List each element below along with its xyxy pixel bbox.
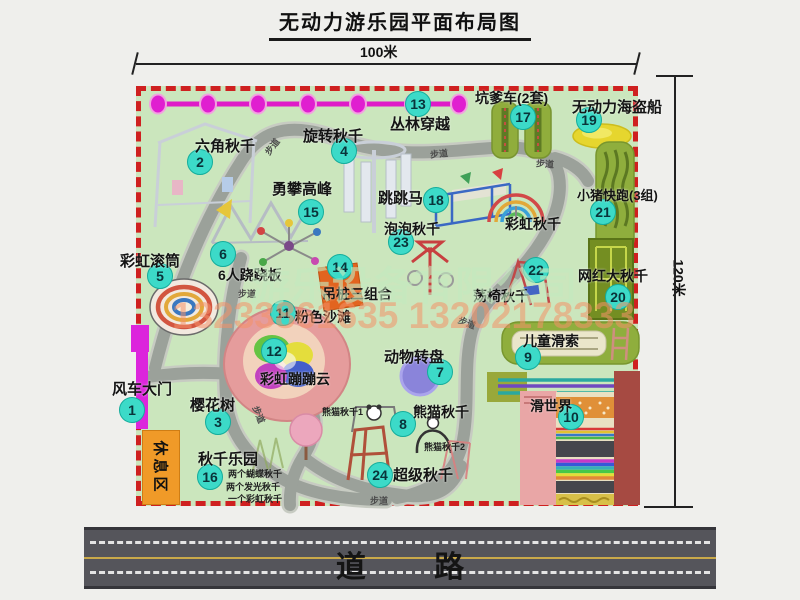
page-title-wrap: 无动力游乐园平面布局图 (0, 6, 800, 41)
dimension-tick (644, 506, 693, 508)
walkway-label: 步道 (370, 494, 388, 507)
width-dimension-line (136, 63, 637, 65)
walkway-label: 步道 (536, 156, 555, 170)
sub-label: 熊猫秋千1 (322, 405, 363, 418)
attraction-label: 彩虹秋千 (505, 214, 561, 234)
attraction-label: 无动力海盗船 (572, 96, 662, 117)
road-label: 道 路 (84, 542, 716, 586)
attraction-label: 坑爹车(2套) (475, 88, 548, 108)
attraction-label: 滑世界 (530, 396, 572, 416)
sub-label: 两个蝴蝶秋千 (228, 467, 282, 480)
attraction-label: 秋千乐园 (198, 448, 258, 469)
attraction-label: 小猪快跑(3组) (577, 185, 658, 204)
dimension-tick (656, 75, 693, 77)
attraction-label: 动物转盘 (384, 346, 444, 367)
attraction-badge-15: 15 (298, 199, 324, 225)
attraction-badge-1: 1 (119, 397, 145, 423)
attraction-label: 樱花树 (190, 394, 235, 415)
page-title: 无动力游乐园平面布局图 (269, 6, 531, 41)
attraction-label: 超级秋千 (393, 464, 453, 485)
attraction-badge-18: 18 (423, 187, 449, 213)
attraction-label: 风车大门 (112, 378, 172, 399)
attraction-label: 跳跳马 (378, 187, 423, 208)
attraction-label: 丛林穿越 (390, 113, 450, 134)
rest-area-label: 休息区 (151, 440, 172, 494)
attraction-badge-12: 12 (261, 338, 287, 364)
height-dimension-line (674, 76, 676, 507)
park-plan-canvas: 无动力游乐园平面布局图 100米 120米 (0, 0, 800, 600)
attraction-label: 泡泡秋千 (384, 219, 440, 239)
attraction-label: 彩虹滚筒 (120, 250, 180, 271)
attraction-label: 勇攀高峰 (272, 178, 332, 199)
attraction-label: 彩虹蹦蹦云 (260, 369, 330, 389)
walkway-label: 步道 (429, 146, 448, 161)
width-dimension-label: 100米 (360, 42, 397, 62)
attraction-label: 熊猫秋千 (413, 402, 469, 422)
attraction-badge-24: 24 (367, 462, 393, 488)
attraction-label: 旋转秋千 (303, 125, 363, 146)
sub-label: 熊猫秋千2 (424, 440, 465, 453)
phone-watermark: 13233861635 13202178333 (172, 295, 635, 337)
height-dimension-label: 120米 (669, 259, 689, 296)
sub-label: 一个彩虹秋千 (228, 492, 282, 505)
attraction-label: 六角秋千 (195, 135, 255, 156)
road: 道 路 (84, 527, 716, 589)
rest-area-box: 休息区 (142, 430, 180, 505)
attraction-badge-6: 6 (210, 241, 236, 267)
attraction-label: 网红大秋千 (578, 266, 648, 286)
